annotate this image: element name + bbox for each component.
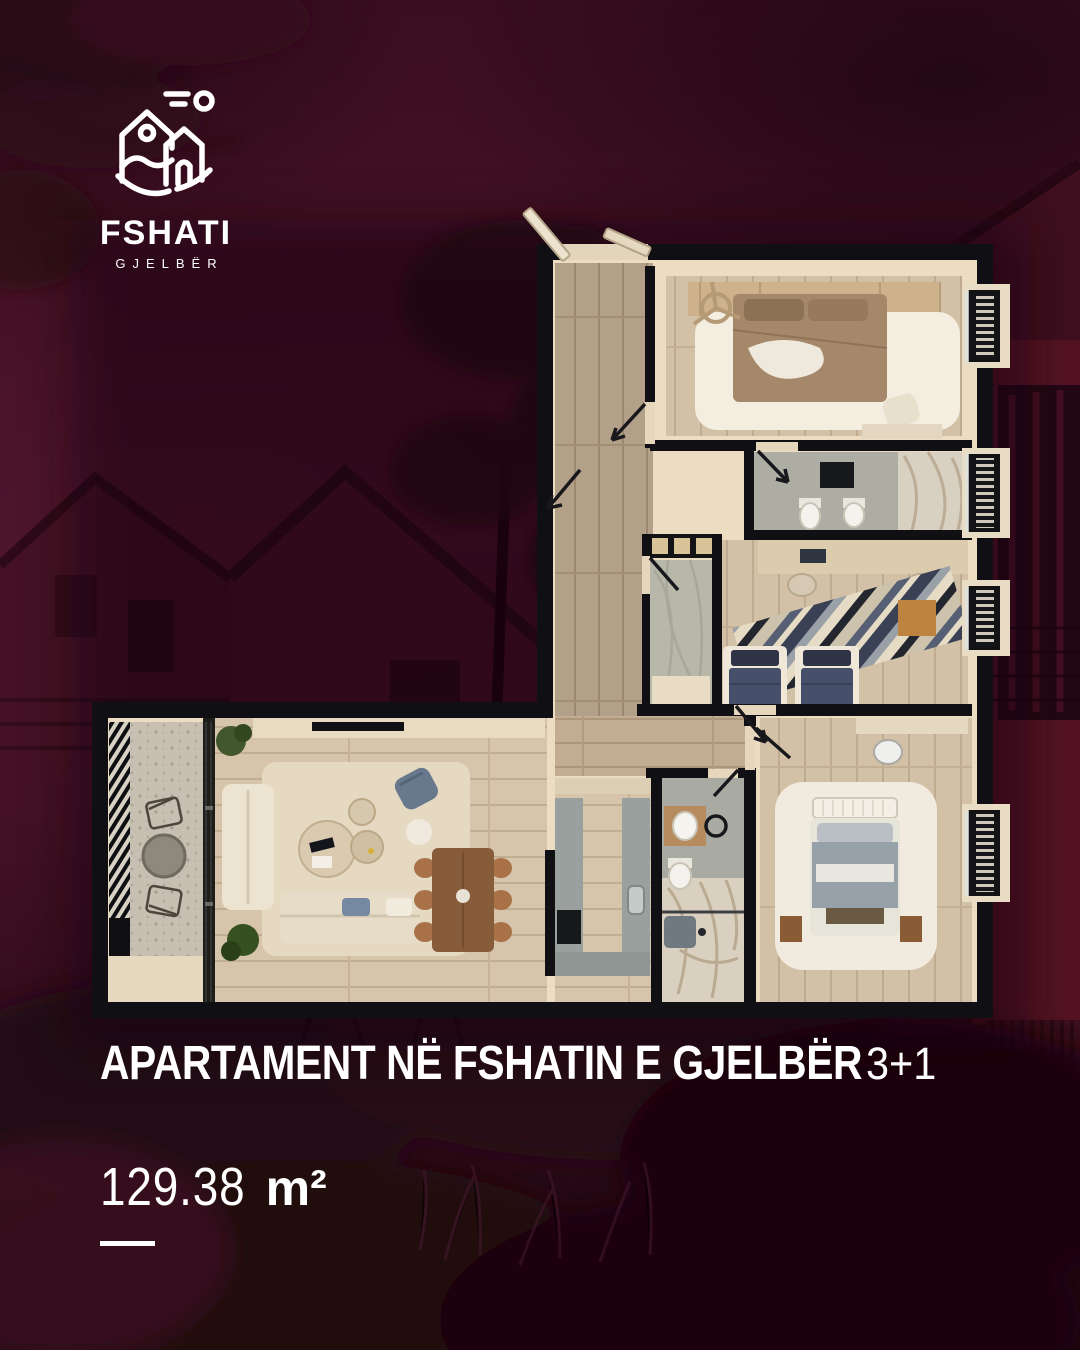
room-hallway bbox=[555, 716, 755, 776]
master-vanity bbox=[862, 424, 942, 439]
window-ensuite bbox=[962, 448, 1010, 538]
logo-name: FSHATI bbox=[93, 216, 239, 250]
logo-subtitle: GJELBËR bbox=[93, 257, 239, 270]
room-bedroom-3 bbox=[760, 718, 972, 1002]
kids-bed-1 bbox=[723, 646, 787, 710]
window-kids-bedroom bbox=[962, 580, 1010, 656]
kitchen-upper-cabinets bbox=[555, 778, 651, 794]
room-master-bedroom bbox=[666, 276, 962, 439]
washbasin bbox=[673, 812, 697, 840]
accent-underline bbox=[100, 1241, 155, 1246]
room-walkin-closet bbox=[650, 560, 712, 710]
toilet bbox=[799, 498, 821, 529]
room-entrance-corridor bbox=[555, 263, 653, 716]
bedroom3-bed bbox=[810, 798, 900, 936]
balcony-bench bbox=[109, 956, 203, 1006]
apartment-type-badge: 3+1 bbox=[866, 1038, 936, 1090]
room-main-bathroom bbox=[662, 778, 744, 1002]
kids-bed-2 bbox=[795, 646, 859, 710]
poster: FSHATI GJELBËR APARTAMENT NË FSHATIN E G… bbox=[0, 0, 1080, 1350]
kids-cabinet bbox=[898, 600, 936, 636]
room-kitchen bbox=[555, 778, 651, 1002]
logo-window-icon bbox=[141, 127, 154, 140]
balcony-table bbox=[143, 835, 185, 877]
master-bed bbox=[733, 294, 887, 402]
bidet bbox=[843, 498, 865, 527]
logo-door-icon bbox=[178, 162, 190, 184]
room-ensuite-bathroom bbox=[754, 452, 972, 534]
bedroom3-chair bbox=[874, 740, 902, 764]
sofa-cushion-blue bbox=[342, 898, 370, 916]
bedroom3-desk bbox=[856, 718, 968, 734]
balcony bbox=[109, 722, 204, 1006]
room-kids-bedroom bbox=[722, 540, 970, 710]
cooktop bbox=[557, 910, 581, 944]
kitchen-sink bbox=[628, 886, 644, 914]
nightstand-2 bbox=[900, 916, 922, 942]
balcony-railing bbox=[109, 722, 130, 918]
desk-chair bbox=[788, 574, 816, 596]
toilet-main bbox=[668, 858, 692, 889]
glass-partition bbox=[203, 718, 215, 1010]
area-unit: m² bbox=[266, 1159, 327, 1217]
window-master-bedroom bbox=[962, 284, 1010, 368]
dining-set bbox=[414, 848, 512, 952]
tv bbox=[312, 722, 404, 731]
logo-house-icon bbox=[114, 88, 218, 206]
brand-logo: FSHATI GJELBËR bbox=[93, 88, 239, 270]
headline-title: APARTAMENT NË FSHATIN E GJELBËR bbox=[100, 1036, 862, 1091]
nightstand-1 bbox=[780, 916, 802, 942]
room-living-room bbox=[215, 718, 547, 1002]
window-bedroom-3 bbox=[962, 804, 1010, 902]
pouf bbox=[406, 819, 432, 845]
logo-sun-icon bbox=[196, 93, 212, 109]
corridor-cupboards bbox=[648, 534, 718, 558]
area-value: 129.38 bbox=[100, 1156, 245, 1218]
bathroom-tv-panel bbox=[820, 462, 854, 488]
area-row: 129.38 m² bbox=[100, 1156, 327, 1218]
